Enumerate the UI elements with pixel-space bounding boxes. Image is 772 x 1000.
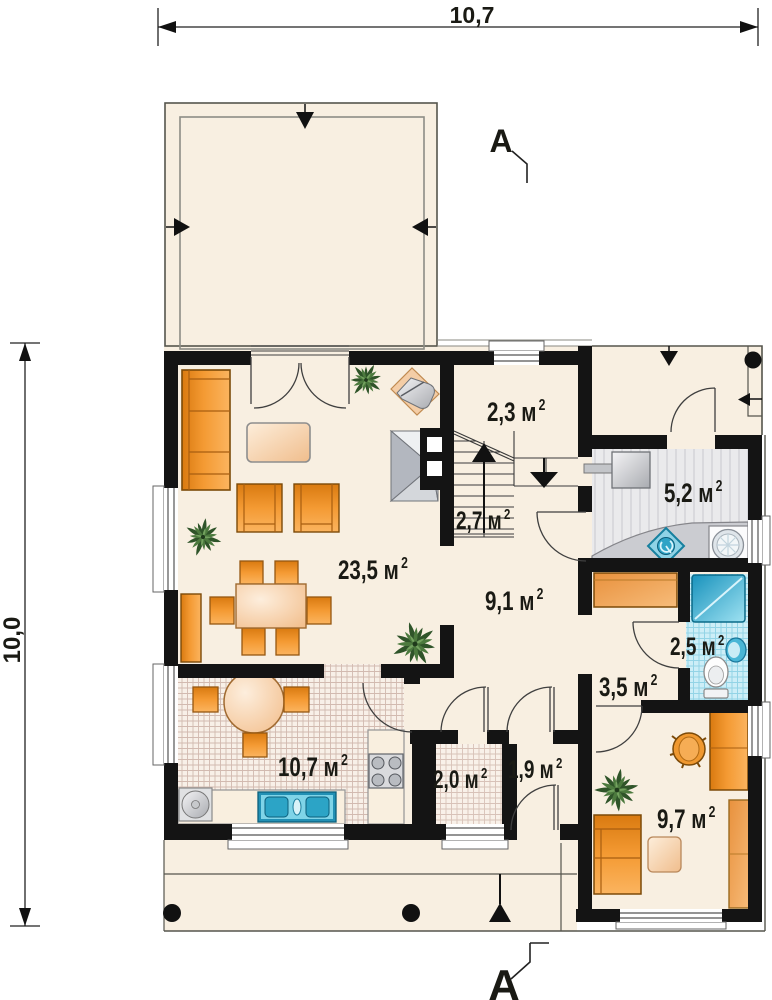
svg-text:23,5 м2: 23,5 м2 (338, 554, 408, 585)
svg-text:A: A (488, 961, 520, 1000)
svg-text:A: A (489, 123, 512, 159)
svg-text:10,7 м2: 10,7 м2 (278, 751, 348, 782)
svg-text:10,0: 10,0 (0, 617, 26, 664)
svg-text:10,7: 10,7 (450, 2, 495, 28)
